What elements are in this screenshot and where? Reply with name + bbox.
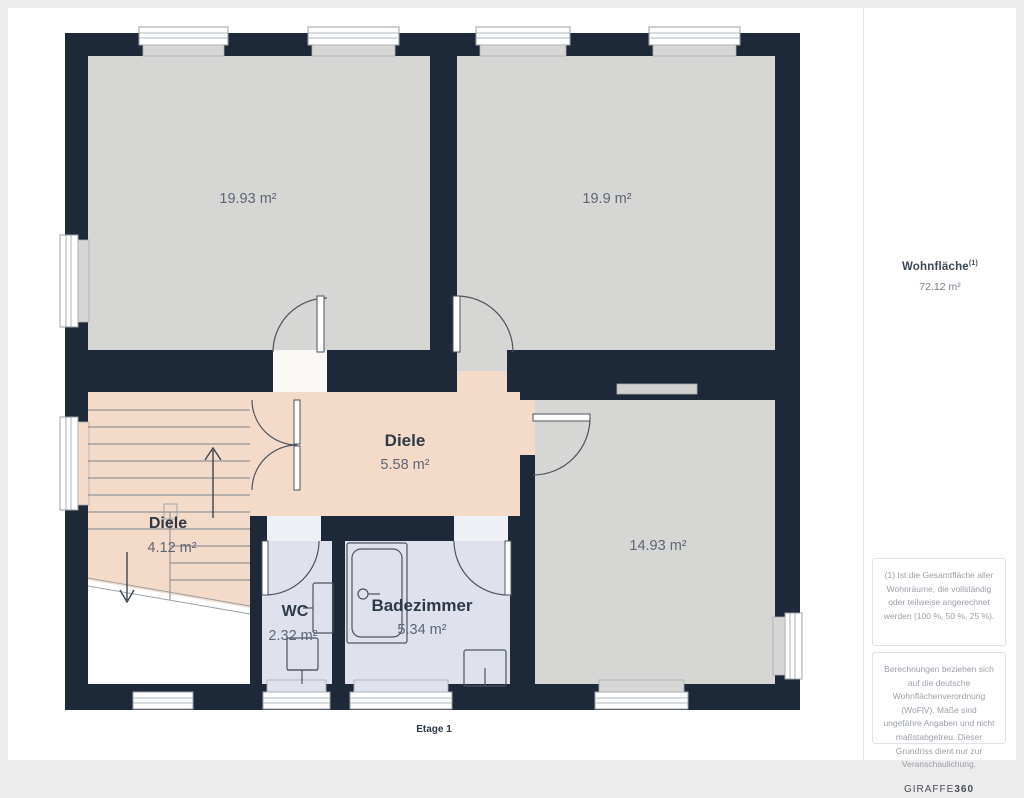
window-bottom-1 xyxy=(133,692,193,709)
total-area-label-text: Wohnfläche xyxy=(902,261,969,273)
niche-sill xyxy=(617,384,697,394)
window-left-1 xyxy=(60,235,89,327)
floor-plan-page: 19.93 m² 19.9 m² Diele 5.58 m² Diele 4.1… xyxy=(8,8,1016,760)
window-top-1 xyxy=(139,27,228,56)
footnote-2-text: Berechnungen beziehen sich auf die deuts… xyxy=(883,664,994,769)
total-area-value: 72.12 m² xyxy=(864,281,1016,293)
hall-stairs-area: 4.12 m² xyxy=(147,540,196,556)
brand-name: GIRAFFE xyxy=(904,784,954,795)
hall-floor xyxy=(88,392,520,516)
window-bottom-4 xyxy=(595,680,688,709)
footnote-box-2: Berechnungen beziehen sich auf die deuts… xyxy=(872,652,1006,744)
footnote-1-text: (1) Ist die Gesamtfläche aller Wohnräume… xyxy=(884,570,995,621)
brand-suffix: 360 xyxy=(954,784,974,795)
window-top-4 xyxy=(649,27,740,56)
room-top-right-area: 19.9 m² xyxy=(582,191,631,207)
bathroom-area: 5.34 m² xyxy=(397,622,446,638)
total-area-footnote-marker: (1) xyxy=(969,260,978,267)
room-top-left-area: 19.93 m² xyxy=(219,191,276,207)
room-right-area: 14.93 m² xyxy=(629,538,686,554)
footnote-box-1: (1) Ist die Gesamtfläche aller Wohnräume… xyxy=(872,558,1006,646)
total-area-block: Wohnfläche(1) 72.12 m² xyxy=(864,260,1016,293)
window-right-1 xyxy=(773,613,802,679)
sidebar: Wohnfläche(1) 72.12 m² (1) Ist die Gesam… xyxy=(864,8,1016,760)
hall-stairs-name: Diele xyxy=(149,515,187,532)
window-left-2 xyxy=(60,417,89,510)
wc-area: 2.32 m² xyxy=(268,628,317,644)
wc-name: WC xyxy=(282,603,309,620)
hall-main-name: Diele xyxy=(385,431,426,450)
total-area-label: Wohnfläche(1) xyxy=(864,260,1016,273)
window-top-2 xyxy=(308,27,399,56)
giraffe360-logo: GIRAFFE360 xyxy=(881,782,997,798)
window-top-3 xyxy=(476,27,570,56)
window-bottom-2 xyxy=(263,680,330,709)
floor-label: Etage 1 xyxy=(416,724,452,735)
bathroom-name: Badezimmer xyxy=(371,596,472,615)
window-bottom-3 xyxy=(350,680,452,709)
hall-main-area: 5.58 m² xyxy=(380,457,429,473)
